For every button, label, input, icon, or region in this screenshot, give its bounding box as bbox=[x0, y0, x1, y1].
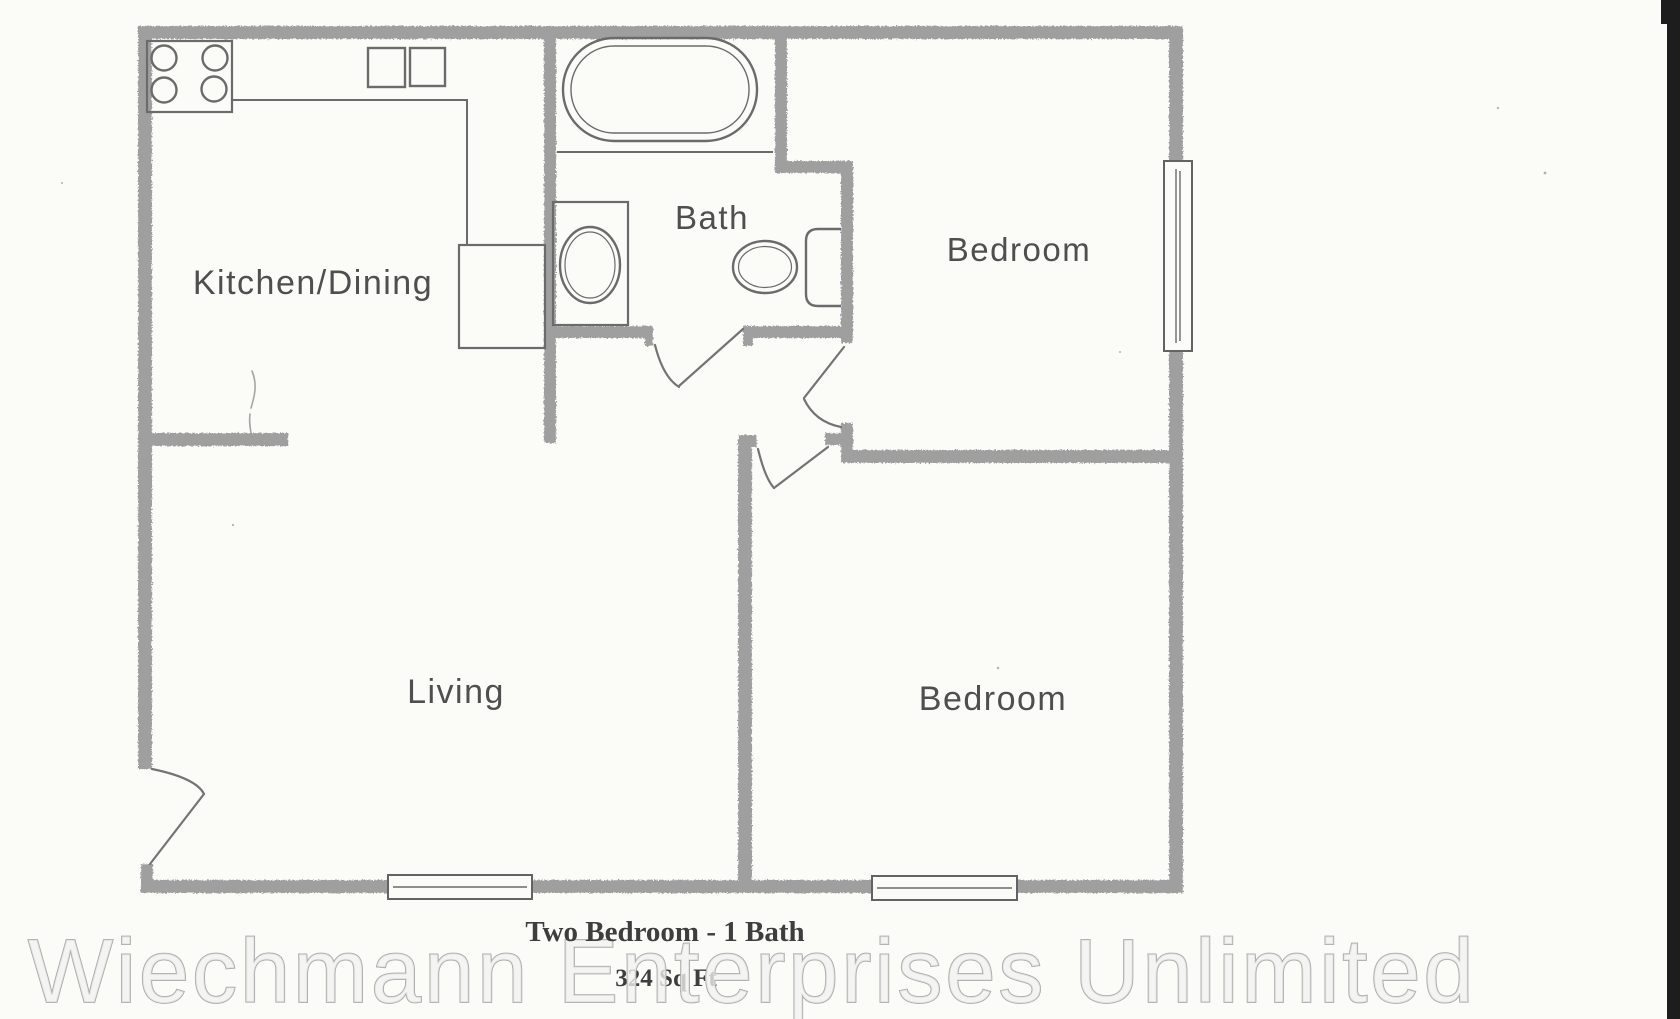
wall-bath-south-east-tab bbox=[743, 326, 753, 346]
scan-speck bbox=[997, 667, 999, 669]
scan-edge-notch bbox=[1661, 0, 1669, 24]
floor-plan-scan: Kitchen/Dining Bath Bedroom Living Bedro… bbox=[0, 0, 1680, 1019]
wall-living-bedroom-divider bbox=[738, 435, 752, 880]
scan-page bbox=[0, 0, 1680, 1019]
wall-bedrooms-divider bbox=[841, 450, 1183, 463]
scan-speck bbox=[1119, 351, 1121, 353]
room-label-bedroom-bottom: Bedroom bbox=[919, 680, 1067, 718]
room-label-bath: Bath bbox=[675, 199, 749, 236]
wall-bath-south-west bbox=[544, 326, 653, 338]
scan-speck bbox=[61, 182, 63, 184]
wall-kitchen-bath bbox=[544, 26, 556, 443]
scan-speck bbox=[1544, 172, 1547, 175]
wall-left bbox=[138, 26, 152, 769]
wall-bath-south-east bbox=[743, 326, 841, 338]
scan-speck bbox=[232, 524, 234, 526]
wall-kitchen-living-stub bbox=[150, 433, 288, 446]
wall-bath-bedroom-lower bbox=[841, 161, 853, 343]
window-bedroom-right bbox=[1164, 161, 1192, 351]
room-label-bedroom-top: Bedroom bbox=[947, 231, 1091, 268]
room-label-living: Living bbox=[407, 673, 505, 711]
caption-title: Two Bedroom - 1 Bath bbox=[525, 916, 804, 948]
room-label-kitchen: Kitchen/Dining bbox=[193, 264, 433, 302]
wall-bottom bbox=[147, 880, 1183, 893]
wall-bath-bedroom-upper bbox=[775, 26, 787, 167]
wall-bedroom1-door-tab bbox=[825, 433, 847, 445]
scan-speck bbox=[1497, 107, 1499, 109]
wall-bath-south-west-tab bbox=[645, 326, 653, 346]
scan-edge-strip bbox=[1667, 0, 1680, 1019]
wall-living-bedroom-divider-tab bbox=[738, 435, 757, 447]
